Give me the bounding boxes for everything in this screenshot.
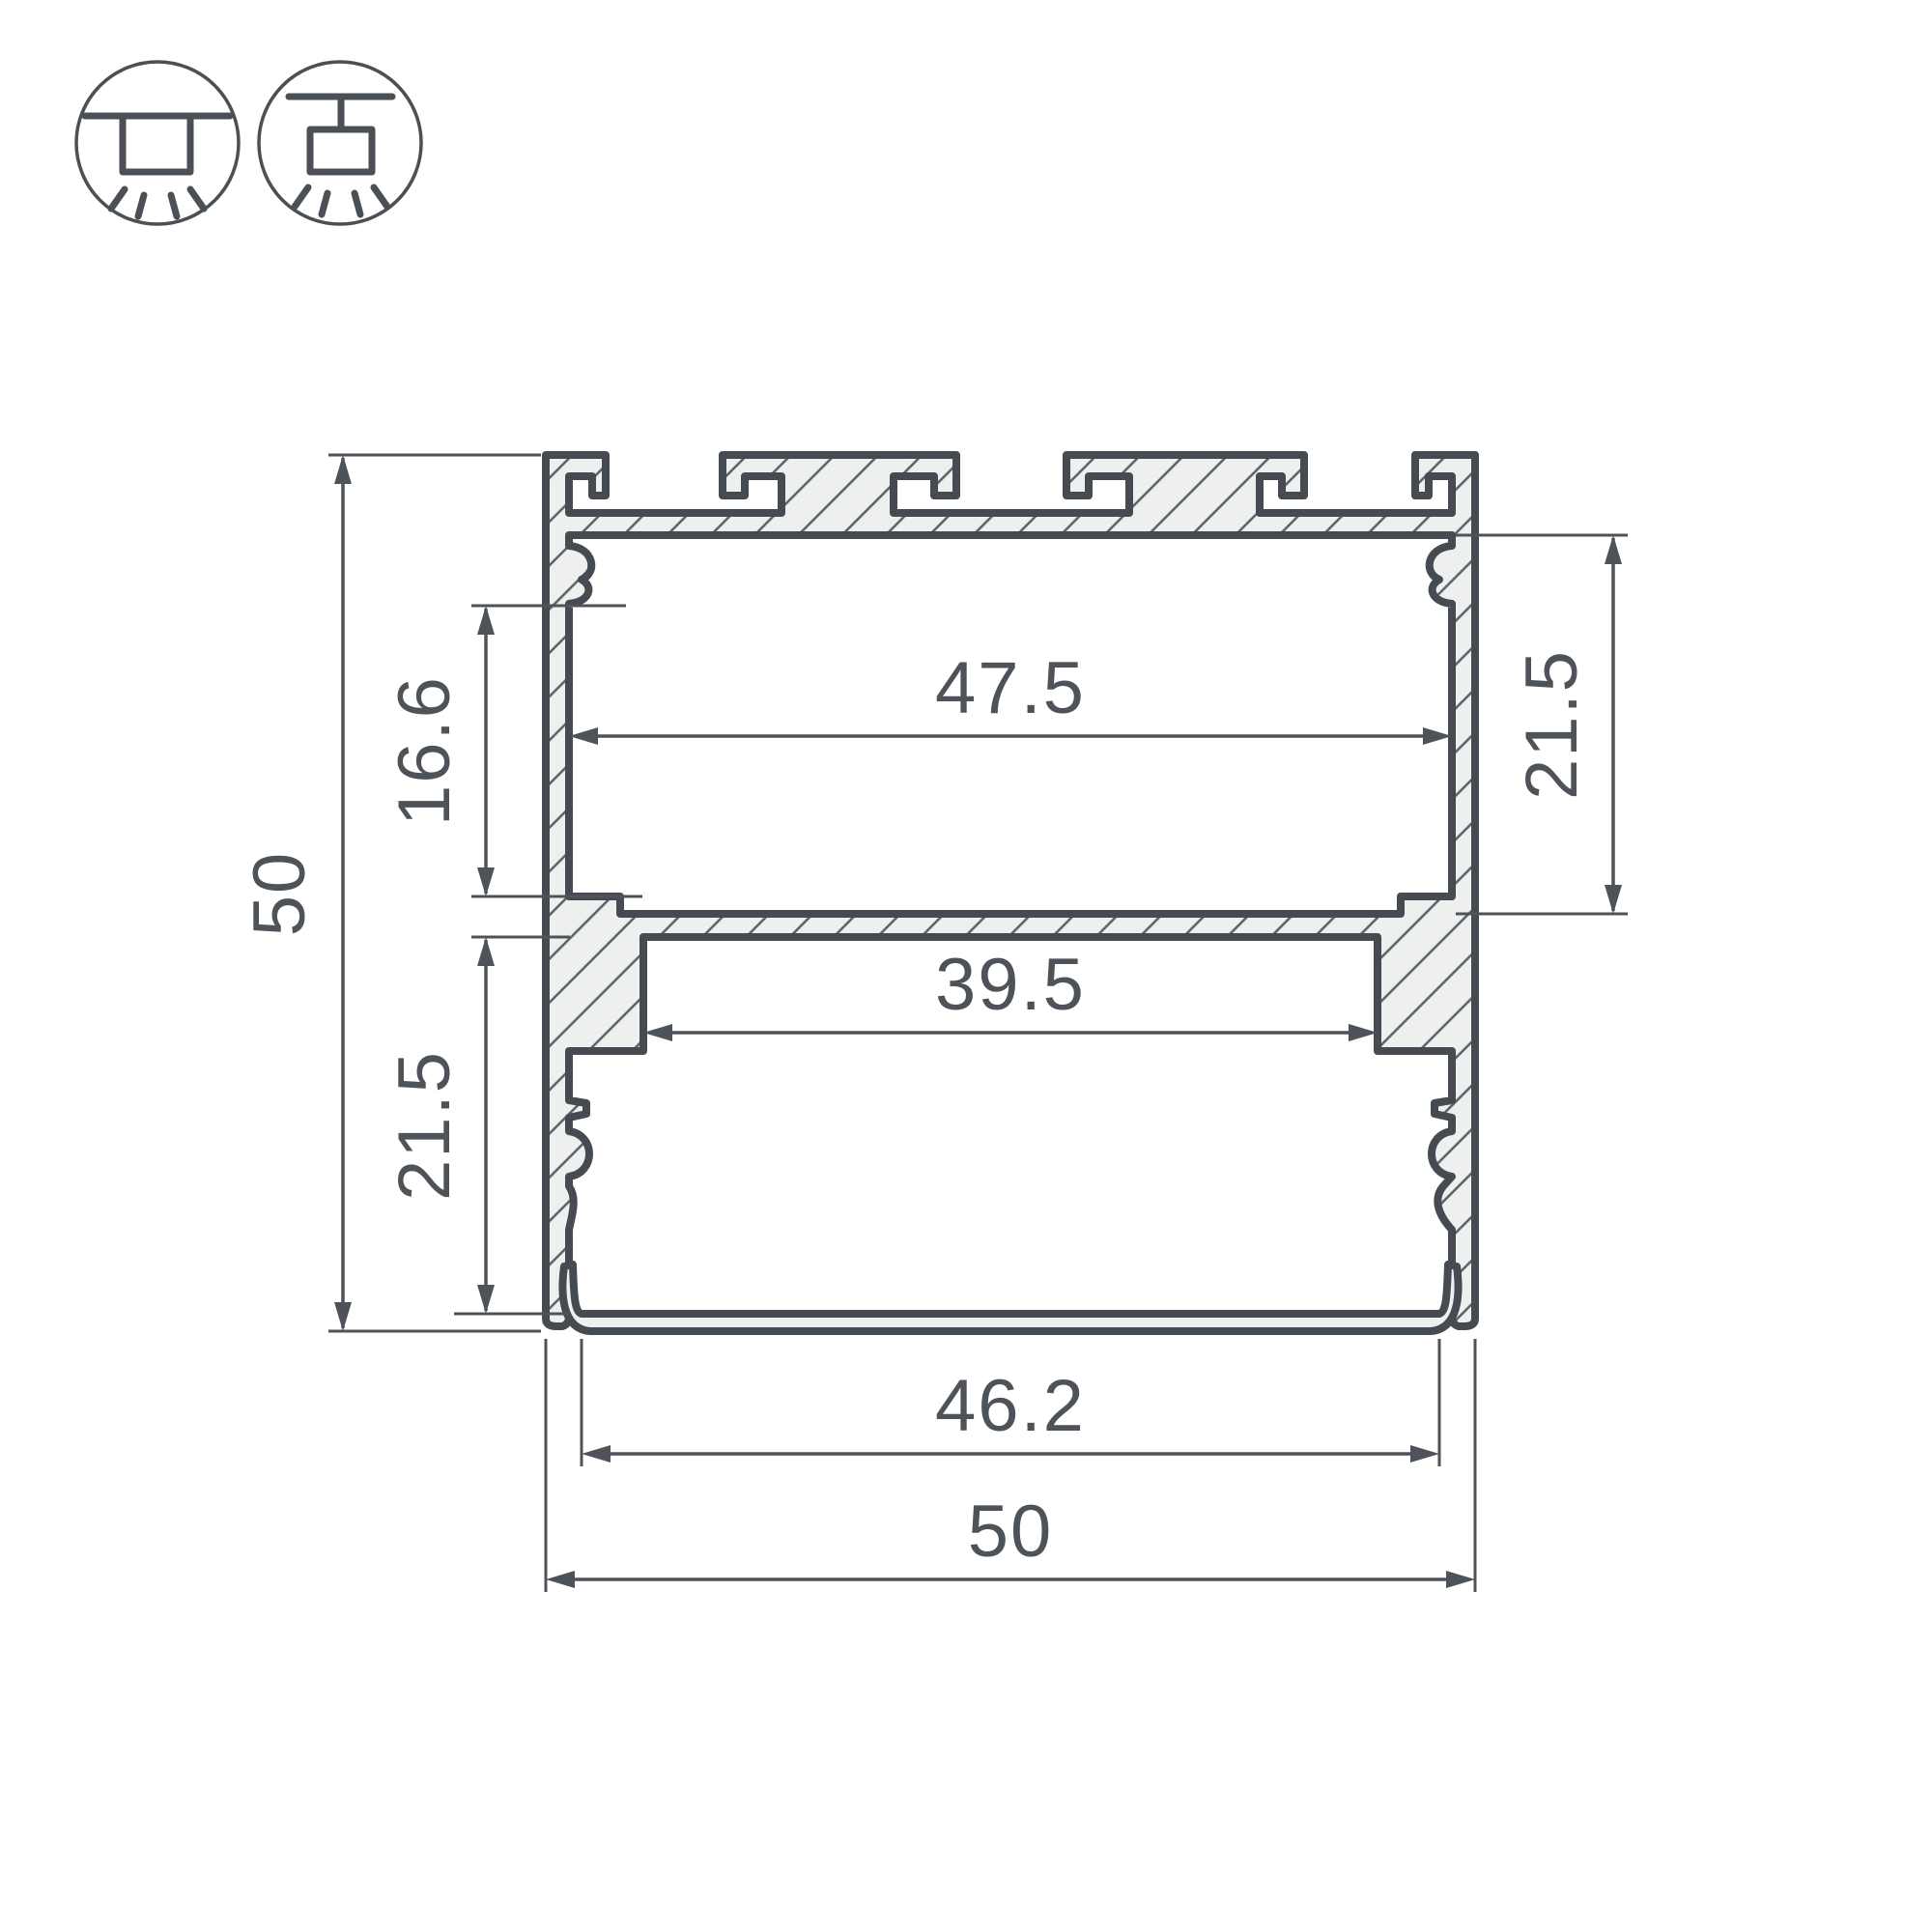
dim-label-left-lower: 21.5 <box>384 1050 466 1201</box>
dim-label-left-upper: 16.6 <box>384 675 466 826</box>
dim-label-bottom-inner-width: 46.2 <box>935 1365 1086 1447</box>
dim-label-overall-width: 50 <box>968 1491 1054 1573</box>
pendant-mount-icon <box>259 62 421 224</box>
icon-circle <box>76 62 239 224</box>
dim-top-inner-width: 47.5 <box>569 647 1452 745</box>
dim-left-upper: 16.6 <box>384 606 642 896</box>
light-rays <box>111 189 204 216</box>
dim-mid-channel-width: 39.5 <box>643 944 1378 1041</box>
profile-box <box>123 116 190 172</box>
surface-mount-icon <box>76 62 239 224</box>
diffuser-screen <box>562 1264 1458 1331</box>
icon-circle <box>259 62 421 224</box>
dim-right-side: 21.5 <box>1456 535 1628 914</box>
dim-label-top-inner-width: 47.5 <box>935 647 1086 729</box>
technical-drawing-page: 50 16.6 21.5 21.5 47.5 39 <box>0 0 1932 1932</box>
aluminum-profile-section <box>546 455 1475 1326</box>
light-rays <box>295 187 387 214</box>
dim-label-mid-channel-width: 39.5 <box>935 944 1086 1026</box>
profile-cross-section-drawing: 50 16.6 21.5 21.5 47.5 39 <box>0 0 1932 1932</box>
profile-box <box>310 129 372 172</box>
dim-label-right-side: 21.5 <box>1511 649 1593 800</box>
dim-bottom-inner-width: 46.2 <box>582 1339 1439 1466</box>
dim-label-overall-height: 50 <box>239 851 321 937</box>
